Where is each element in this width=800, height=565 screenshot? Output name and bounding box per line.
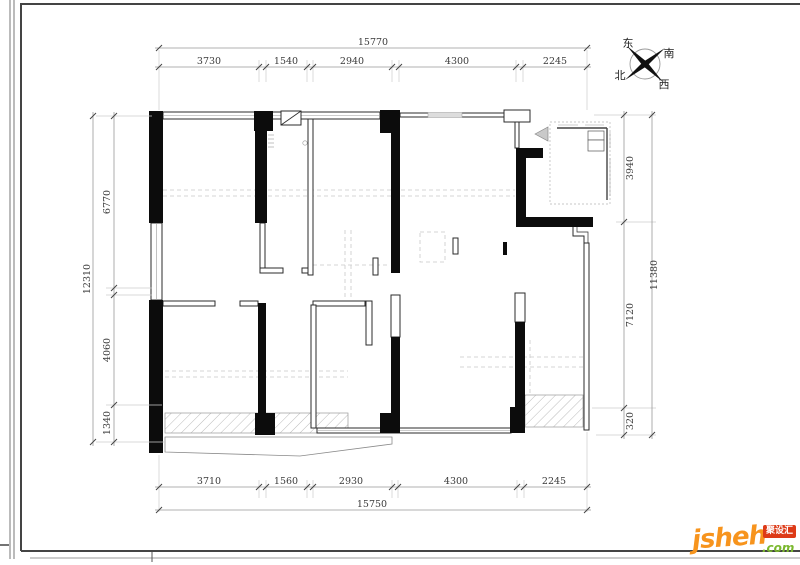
jsheh-logo: jsheh .com 聚设汇 — [690, 521, 798, 559]
dim-left-seg-2: 1340 — [102, 411, 113, 435]
dim-top-seg-0: 3730 — [197, 56, 221, 67]
dim-right-seg-1: 7120 — [625, 303, 636, 327]
dim-left-total: 12310 — [82, 264, 93, 294]
logo-badge: 聚设汇 — [763, 525, 796, 538]
dim-top-seg-4: 2245 — [543, 56, 567, 67]
compass-north-label: 北 — [615, 69, 626, 82]
compass-rose: 东 南 北 西 — [615, 37, 675, 91]
dim-top-seg-2: 2940 — [340, 56, 364, 67]
dim-top-total: 15770 — [358, 37, 388, 48]
balcony-slab-outline — [165, 437, 392, 456]
dim-right: 3940 7120 320 11380 — [592, 111, 660, 439]
compass-south-label: 南 — [664, 47, 675, 60]
dim-bottom-seg-4: 2245 — [542, 476, 566, 487]
dim-bottom: 3710 1560 2930 4300 2245 15750 — [155, 432, 591, 513]
terrace-detail — [550, 122, 610, 204]
compass-blade-icon — [625, 48, 665, 80]
floor-plan-svg: 15770 3730 1540 2940 4300 2245 3710 1560 — [0, 0, 800, 565]
compass-east-label: 东 — [623, 37, 634, 50]
dim-right-seg-2: 320 — [625, 412, 636, 430]
dim-top-seg-1: 1540 — [274, 56, 298, 67]
logo-text: jsheh — [691, 520, 767, 555]
dim-right-total: 11380 — [649, 260, 660, 290]
dim-bottom-seg-3: 4300 — [444, 476, 468, 487]
dim-right-seg-0: 3940 — [625, 156, 636, 180]
door-marks — [268, 135, 307, 147]
balcony-right-hatch — [525, 395, 583, 427]
drawing-sheet: 15770 3730 1540 2940 4300 2245 3710 1560 — [0, 0, 800, 565]
dim-top-seg-3: 4300 — [445, 56, 469, 67]
entry-arrow-icon — [535, 127, 548, 141]
logo-suffix: .com — [762, 541, 794, 555]
compass-west-label: 西 — [659, 78, 670, 91]
dim-left-seg-1: 4060 — [102, 338, 113, 362]
dim-bottom-seg-2: 2930 — [339, 476, 363, 487]
dim-bottom-total: 15750 — [357, 499, 387, 510]
sheet-frame — [0, 0, 800, 562]
dim-left-seg-0: 6770 — [102, 190, 113, 214]
dim-top: 15770 3730 1540 2940 4300 2245 — [155, 37, 591, 110]
dim-bottom-seg-0: 3710 — [197, 476, 221, 487]
dim-bottom-seg-1: 1560 — [274, 476, 298, 487]
